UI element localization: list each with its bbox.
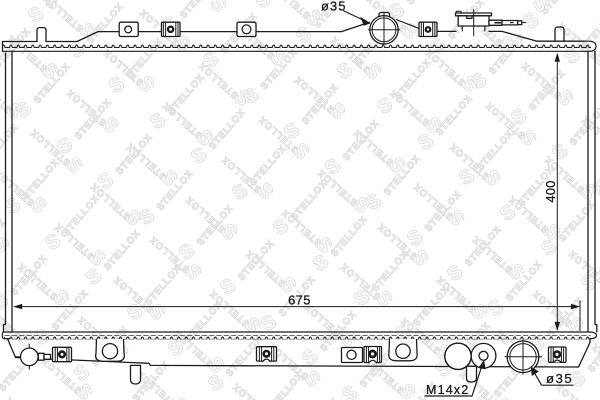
svg-text:400: 400: [543, 180, 558, 202]
svg-text:ø35: ø35: [321, 0, 347, 13]
svg-text:ø35: ø35: [546, 371, 573, 386]
svg-text:675: 675: [288, 293, 311, 308]
svg-text:M14x2: M14x2: [426, 383, 469, 397]
